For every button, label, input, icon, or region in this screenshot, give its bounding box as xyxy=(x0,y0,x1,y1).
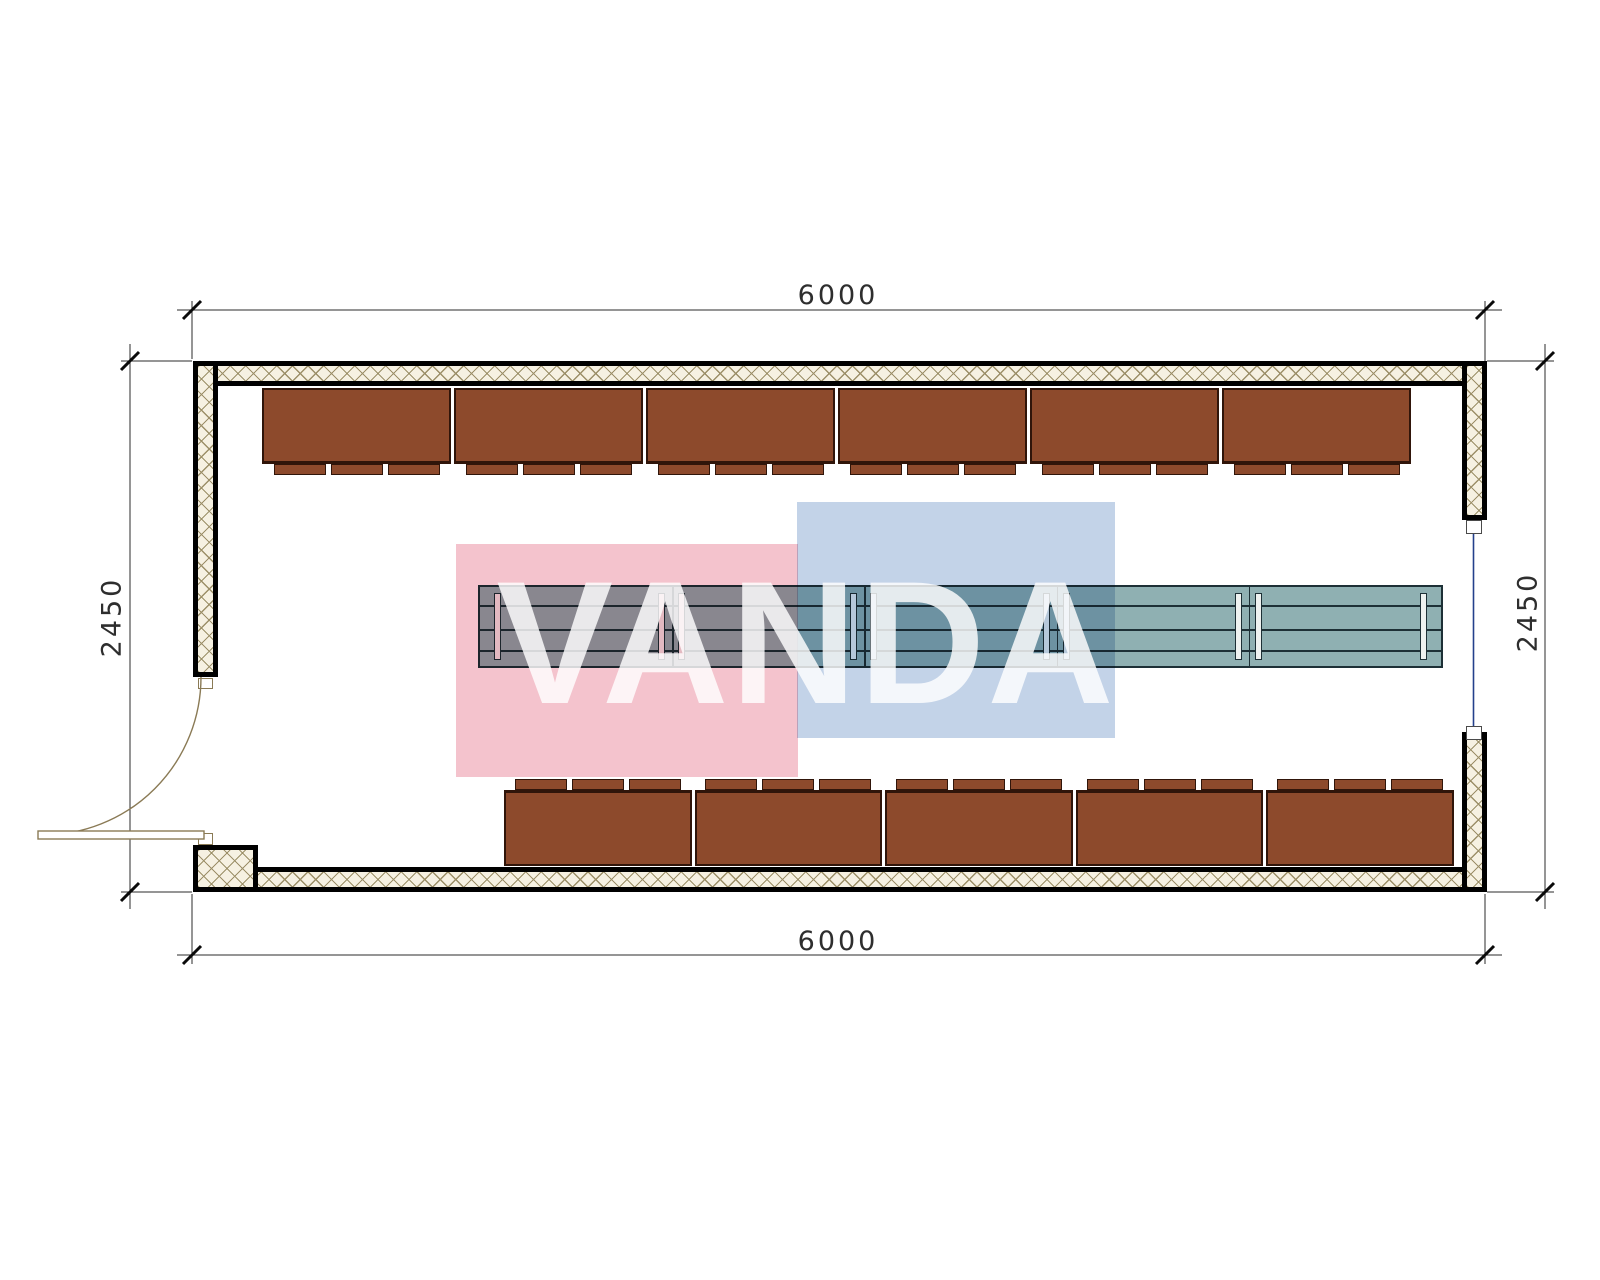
bench-tab xyxy=(705,779,757,790)
bench-tab xyxy=(629,779,681,790)
dim-label-left: 2450 xyxy=(97,577,128,658)
bench-tab xyxy=(715,464,767,475)
dim-label-top: 6000 xyxy=(798,280,879,311)
bench-seat xyxy=(1266,790,1454,866)
bench-tab xyxy=(388,464,440,475)
bench-tab xyxy=(772,464,824,475)
bench-tab xyxy=(953,779,1005,790)
tick-mark xyxy=(183,946,201,964)
bottom-wall xyxy=(193,867,1487,892)
window-frame-bottom xyxy=(1466,726,1482,740)
tick-mark xyxy=(121,883,139,901)
tick-mark xyxy=(1476,946,1494,964)
bench-tab xyxy=(1291,464,1343,475)
bench-tab xyxy=(850,464,902,475)
tick-mark xyxy=(183,301,201,319)
bench-tab xyxy=(515,779,567,790)
bench-seat xyxy=(504,790,692,866)
bench-tab xyxy=(1099,464,1151,475)
bench-seat xyxy=(1222,388,1411,464)
door xyxy=(38,677,204,839)
bench-tab xyxy=(1087,779,1139,790)
door-frame-bottom xyxy=(198,833,213,845)
bench-row-top xyxy=(262,388,1414,475)
bench-seat xyxy=(262,388,451,464)
floor-plan-canvas: 6000 6000 2450 2450 VANDA xyxy=(0,0,1600,1280)
bench-tab xyxy=(1391,779,1443,790)
bench-tab xyxy=(1010,779,1062,790)
table-module-divider xyxy=(1249,587,1251,666)
bench-seat xyxy=(838,388,1027,464)
bench-tab xyxy=(580,464,632,475)
tick-mark xyxy=(1536,883,1554,901)
door-swing-arc xyxy=(43,677,201,835)
bench-tab xyxy=(523,464,575,475)
bench-tab xyxy=(907,464,959,475)
bench-tab xyxy=(1348,464,1400,475)
bench-seat xyxy=(1076,790,1264,866)
bench-seat xyxy=(695,790,883,866)
door-frame-top xyxy=(198,678,213,689)
table-leg xyxy=(1235,593,1242,660)
bench-seat xyxy=(885,790,1073,866)
bench-tab xyxy=(572,779,624,790)
watermark-text: VANDA xyxy=(496,556,1115,731)
table-leg xyxy=(1255,593,1262,660)
bench-seat xyxy=(1030,388,1219,464)
bench-tab xyxy=(466,464,518,475)
bench-tab xyxy=(819,779,871,790)
dim-label-right: 2450 xyxy=(1513,572,1544,653)
table-leg xyxy=(1420,593,1427,660)
right-wall-upper xyxy=(1462,361,1487,520)
tick-mark xyxy=(121,352,139,370)
bench-tab xyxy=(1234,464,1286,475)
bench-seat xyxy=(646,388,835,464)
bench-tab xyxy=(658,464,710,475)
bench-tab xyxy=(1144,779,1196,790)
bench-tab xyxy=(964,464,1016,475)
bench-tab xyxy=(1334,779,1386,790)
tick-mark xyxy=(1536,352,1554,370)
bench-tab xyxy=(762,779,814,790)
dim-label-bottom: 6000 xyxy=(798,926,879,957)
window-frame-top xyxy=(1466,520,1482,534)
top-wall xyxy=(193,361,1487,386)
bench-tab xyxy=(331,464,383,475)
bench-tab xyxy=(274,464,326,475)
bench-tab xyxy=(896,779,948,790)
bottom-left-wall-stub xyxy=(193,845,258,892)
bench-tab xyxy=(1156,464,1208,475)
tick-mark xyxy=(1476,301,1494,319)
door-leaf xyxy=(38,831,204,839)
bench-seat xyxy=(454,388,643,464)
bench-tab xyxy=(1042,464,1094,475)
left-wall xyxy=(193,361,218,677)
bench-row-bottom xyxy=(504,779,1457,866)
bench-tab xyxy=(1201,779,1253,790)
right-wall-lower xyxy=(1462,732,1487,892)
bench-tab xyxy=(1277,779,1329,790)
